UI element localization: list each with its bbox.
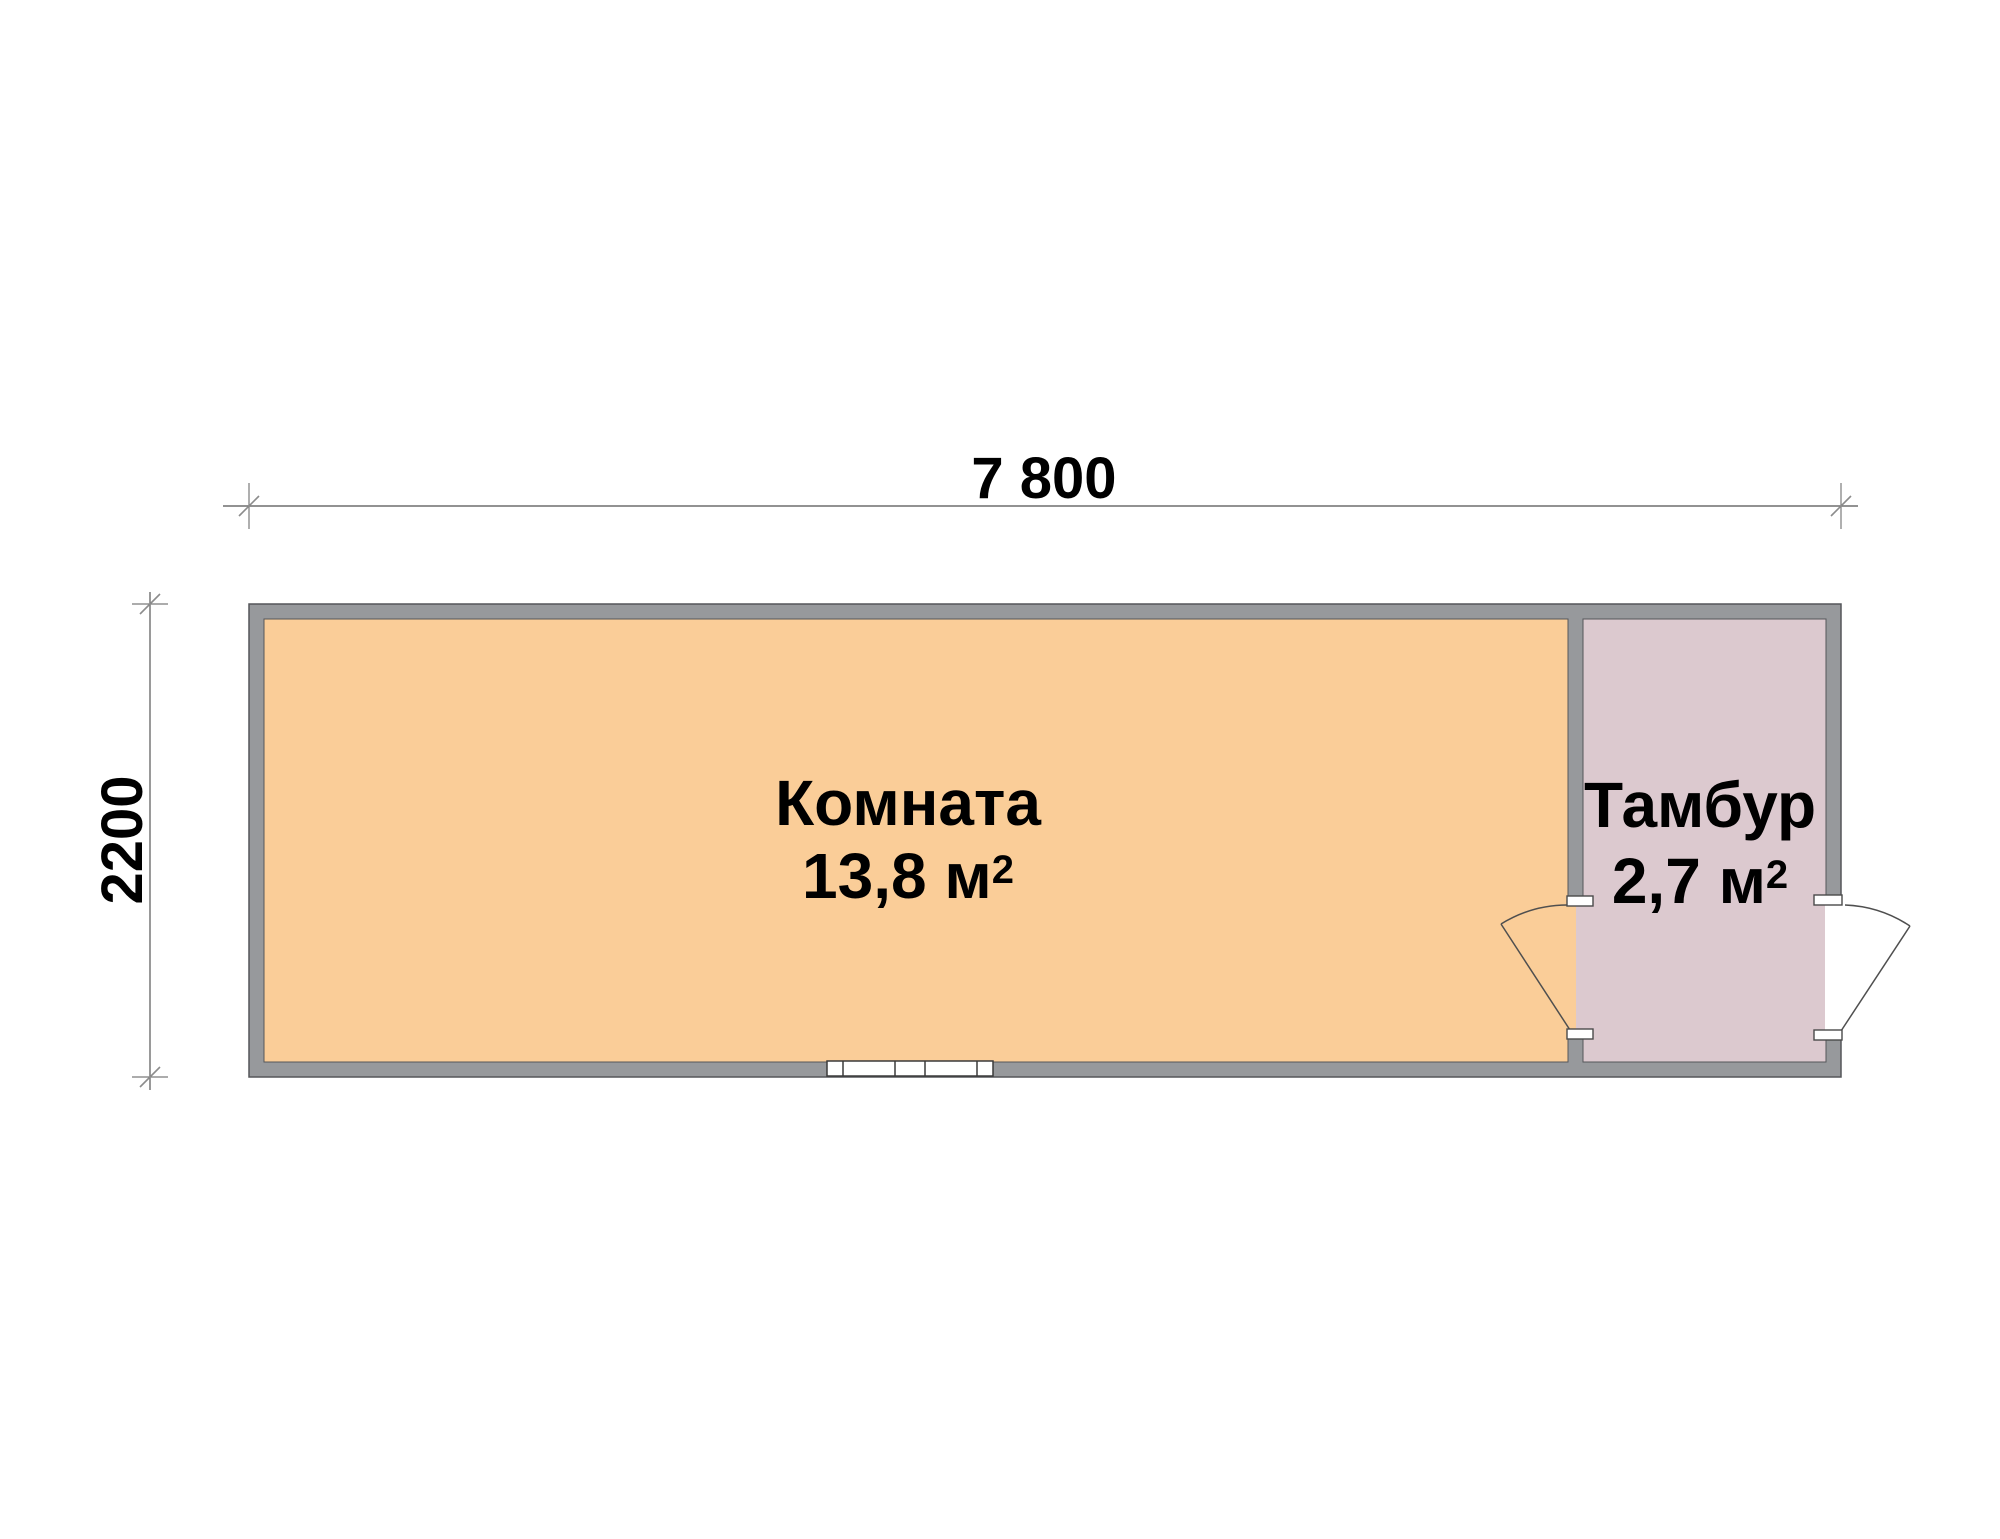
room-tambur-area-superscript: 2 xyxy=(1766,853,1788,897)
room-tambur-area-value: 2,7 м xyxy=(1612,845,1766,917)
exterior-door-jamb-top xyxy=(1814,895,1842,905)
floor-plan-drawing: 7 800 2200 Комната 13,8 м2 Тамбур 2,7 м2 xyxy=(0,0,2000,1539)
interior-door-jamb-bottom xyxy=(1567,1029,1593,1039)
room-komnata-area: 13,8 м2 xyxy=(802,840,1014,912)
dimension-width: 7 800 xyxy=(223,446,1858,529)
dimension-height-label: 2200 xyxy=(90,775,155,904)
room-tambur-name: Тамбур xyxy=(1584,769,1816,841)
floor-plan-canvas: 7 800 2200 Комната 13,8 м2 Тамбур 2,7 м2 xyxy=(0,0,2000,1539)
interior-door-opening-left xyxy=(1566,905,1576,1030)
dimension-width-label: 7 800 xyxy=(971,446,1116,511)
window-frame xyxy=(827,1061,993,1076)
interior-door-jamb-top xyxy=(1567,896,1593,906)
dimension-height: 2200 xyxy=(90,592,168,1090)
window xyxy=(827,1061,993,1076)
exterior-door-jamb-bottom xyxy=(1814,1030,1842,1040)
room-komnata-name: Комната xyxy=(775,767,1041,839)
exterior-door-opening xyxy=(1825,905,1842,1030)
exterior-door-swing-area xyxy=(1841,905,1910,1031)
interior-door-opening-right xyxy=(1576,905,1584,1030)
room-tambur-area: 2,7 м2 xyxy=(1612,845,1788,917)
room-komnata-area-superscript: 2 xyxy=(992,848,1014,892)
room-komnata-area-value: 13,8 м xyxy=(802,840,992,912)
